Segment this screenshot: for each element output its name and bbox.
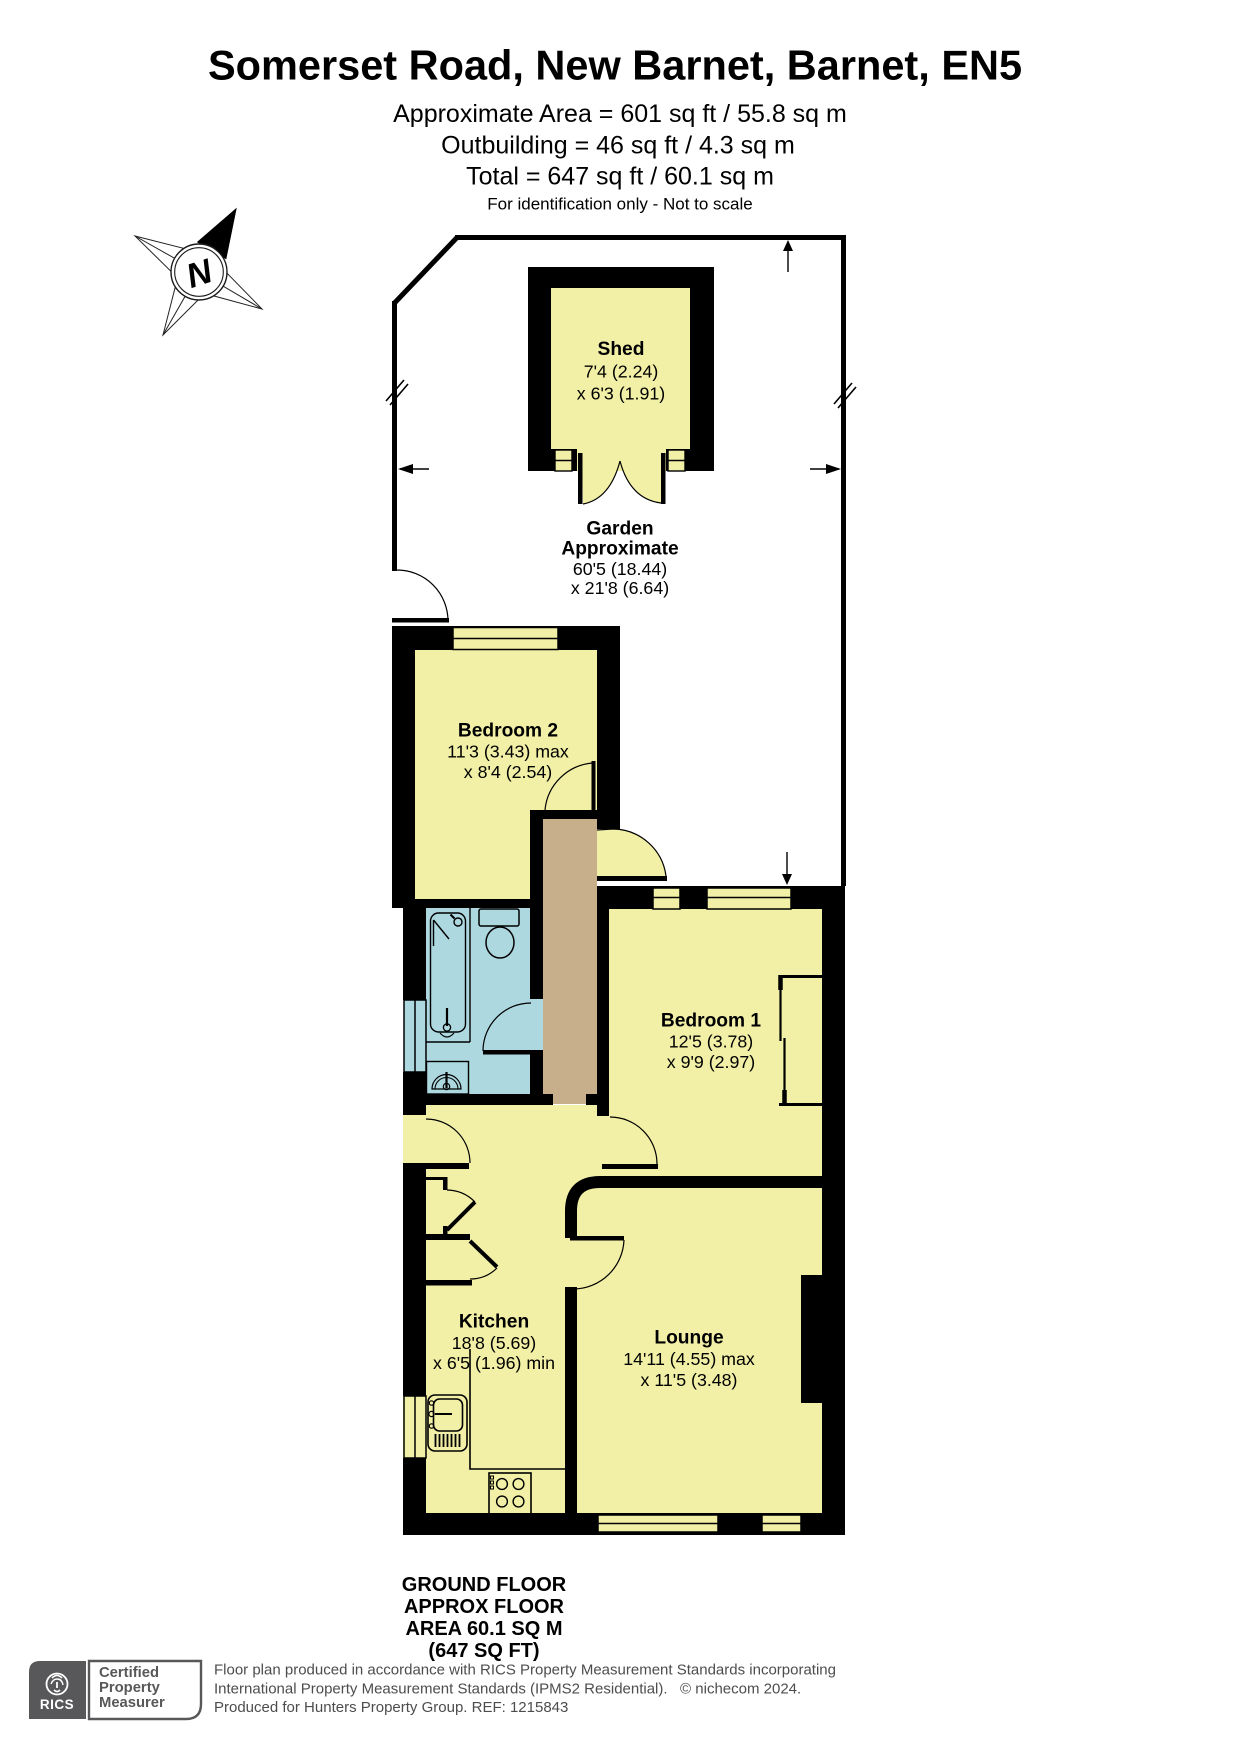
svg-text:x 6'3 (1.91): x 6'3 (1.91) bbox=[577, 384, 665, 404]
svg-text:11'3 (3.43) max: 11'3 (3.43) max bbox=[447, 742, 569, 762]
svg-text:Certified: Certified bbox=[99, 1665, 159, 1681]
svg-text:Floor plan produced in accorda: Floor plan produced in accordance with R… bbox=[214, 1662, 836, 1679]
svg-text:For identification only - Not: For identification only - Not to scale bbox=[487, 195, 753, 214]
svg-text:Shed: Shed bbox=[598, 339, 645, 360]
svg-text:APPROX FLOOR: APPROX FLOOR bbox=[404, 1596, 565, 1618]
svg-text:Produced for Hunters Property: Produced for Hunters Property Group. REF… bbox=[214, 1699, 568, 1716]
svg-text:12'5 (3.78): 12'5 (3.78) bbox=[669, 1032, 753, 1052]
svg-text:18'8 (5.69): 18'8 (5.69) bbox=[452, 1333, 536, 1353]
svg-text:60'5 (18.44): 60'5 (18.44) bbox=[573, 559, 667, 579]
svg-text:x 9'9 (2.97): x 9'9 (2.97) bbox=[667, 1052, 755, 1072]
svg-text:International Property Measure: International Property Measurement Stand… bbox=[214, 1681, 801, 1698]
svg-text:Property: Property bbox=[99, 1680, 161, 1696]
svg-text:Garden: Garden bbox=[586, 519, 653, 540]
svg-text:RICS: RICS bbox=[40, 1697, 74, 1712]
svg-text:Kitchen: Kitchen bbox=[459, 1312, 529, 1333]
svg-text:x 21'8 (6.64): x 21'8 (6.64) bbox=[571, 578, 669, 598]
svg-text:Lounge: Lounge bbox=[654, 1328, 724, 1349]
svg-text:7'4 (2.24): 7'4 (2.24) bbox=[584, 362, 659, 382]
svg-text:x 6'5 (1.96) min: x 6'5 (1.96) min bbox=[433, 1353, 555, 1373]
svg-text:x 8'4 (2.54): x 8'4 (2.54) bbox=[464, 762, 552, 782]
svg-text:Measurer: Measurer bbox=[99, 1695, 165, 1711]
svg-text:Somerset Road, New Barnet, Bar: Somerset Road, New Barnet, Barnet, EN5 bbox=[208, 42, 1022, 89]
svg-text:Outbuilding = 46 sq ft / 4.3 s: Outbuilding = 46 sq ft / 4.3 sq m bbox=[441, 132, 795, 160]
svg-text:Approximate: Approximate bbox=[561, 539, 679, 560]
svg-text:x 11'5 (3.48): x 11'5 (3.48) bbox=[641, 1370, 738, 1390]
svg-text:14'11 (4.55) max: 14'11 (4.55) max bbox=[623, 1349, 755, 1369]
svg-text:Bedroom 2: Bedroom 2 bbox=[458, 721, 558, 742]
svg-text:(647 SQ FT): (647 SQ FT) bbox=[428, 1640, 539, 1662]
svg-text:Approximate Area = 601 sq ft /: Approximate Area = 601 sq ft / 55.8 sq m bbox=[393, 100, 847, 128]
svg-text:GROUND FLOOR: GROUND FLOOR bbox=[402, 1574, 567, 1596]
svg-text:Total = 647 sq ft / 60.1 sq m: Total = 647 sq ft / 60.1 sq m bbox=[466, 163, 774, 191]
svg-text:AREA 60.1 SQ M: AREA 60.1 SQ M bbox=[405, 1618, 562, 1640]
svg-text:Bedroom 1: Bedroom 1 bbox=[661, 1011, 762, 1032]
